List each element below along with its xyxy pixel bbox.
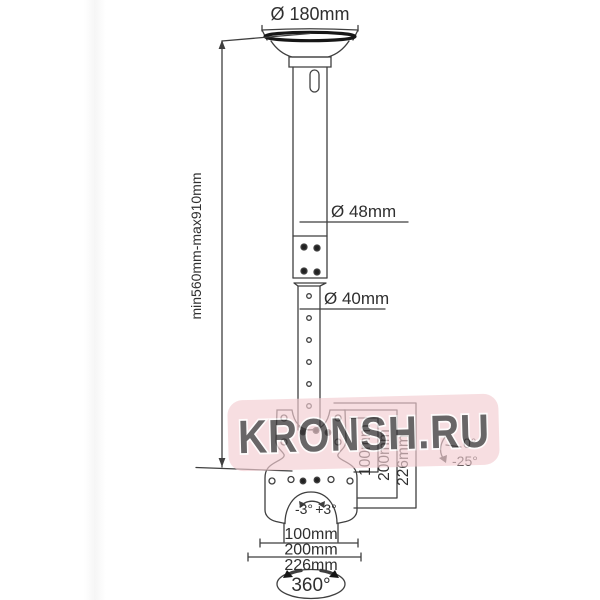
clamp-bolt — [314, 269, 320, 275]
plate-width-200-label: 200mm — [284, 542, 337, 559]
plate-width-226-label: 226mm — [284, 557, 337, 574]
drawing-page: Ø 180mm min560mm-max910mm Ø 48mm Ø 40mm … — [0, 0, 600, 600]
top-diameter-label: Ø 180mm — [270, 4, 349, 24]
clamp-bolt — [301, 244, 307, 250]
swivel-left-label: -3° — [295, 501, 313, 517]
watermark-text: KRONSH.RU — [237, 404, 490, 464]
ceiling-plate — [262, 26, 358, 68]
plate-width-100-label: 100mm — [284, 526, 337, 543]
rotation-label: 360° — [291, 575, 330, 596]
labels: Ø 180mm min560mm-max910mm Ø 48mm Ø 40mm … — [188, 4, 478, 596]
lower-pole-diameter-label: Ø 40mm — [324, 289, 389, 308]
height-range-label: min560mm-max910mm — [188, 172, 204, 319]
upper-pole-diameter-label: Ø 48mm — [331, 202, 396, 221]
upper-pole — [293, 67, 327, 286]
mount-diagram: Ø 180mm min560mm-max910mm Ø 48mm Ø 40mm … — [0, 0, 600, 600]
clamp-bolt — [314, 245, 320, 251]
scan-shadow — [84, 0, 106, 600]
clamp-bolt — [301, 268, 307, 274]
watermark: KRONSH.RU — [227, 393, 500, 471]
pole-slot — [310, 70, 319, 92]
swivel-right-label: +3° — [315, 501, 337, 517]
